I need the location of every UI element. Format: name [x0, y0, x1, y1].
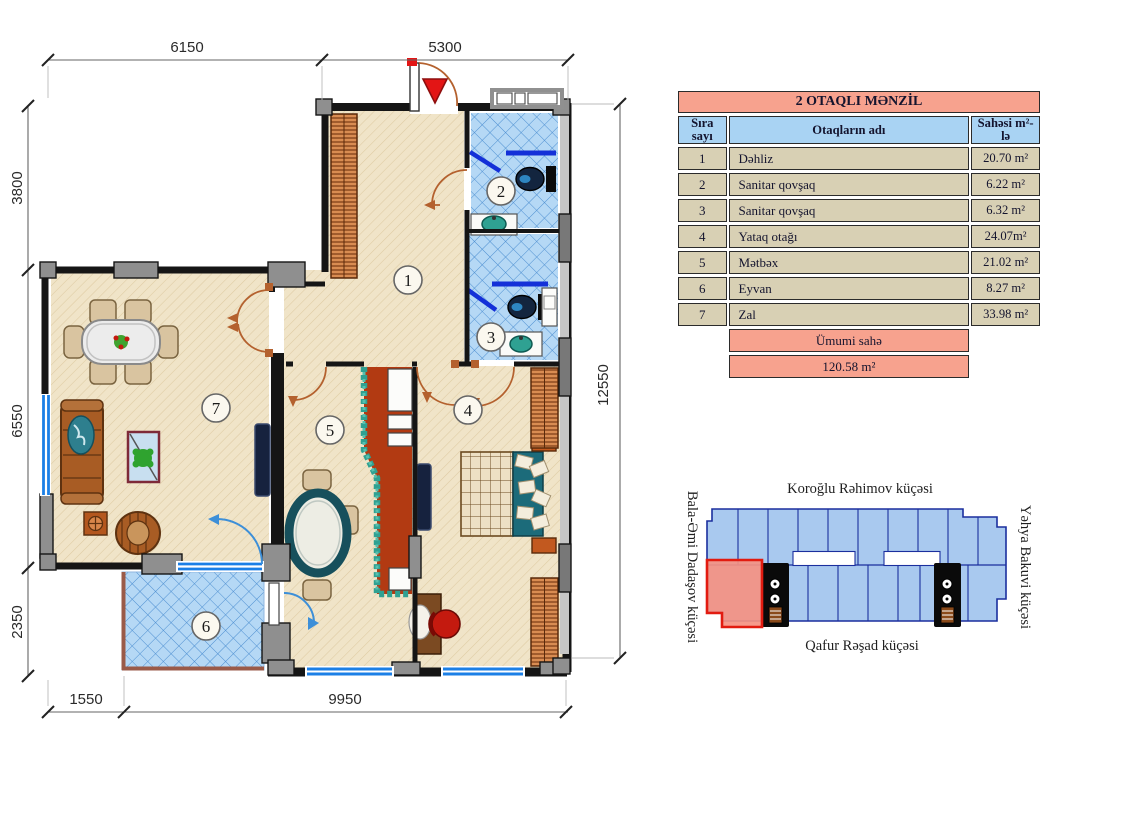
room-circle-6: 6: [192, 612, 220, 640]
table-row: 3Sanitar qovşaq6.32 m²: [678, 199, 1040, 222]
dim-left-middle: 6550: [9, 404, 26, 437]
room-circle-2: 2: [487, 177, 515, 205]
svg-text:1: 1: [404, 271, 413, 290]
tv-panel-bedroom: [417, 464, 431, 530]
room-circle-7: 7: [202, 394, 230, 422]
street-right-label: Yəhya Bakuvi küçəsi: [1017, 505, 1033, 629]
bed: [461, 436, 556, 553]
entrance-door: [407, 58, 458, 114]
architectural-plan-sheet: 1 2 3 4 5 6 7: [0, 0, 1127, 828]
desk-chair: [432, 610, 460, 638]
floor-plan: 1 2 3 4 5 6 7: [0, 0, 660, 770]
apartment-area-table: 2 OTAQLI MƏNZİL Sıra sayı Otaqların adı …: [676, 88, 1042, 381]
dim-bottom-left: 1550: [69, 691, 102, 708]
svg-text:2: 2: [497, 182, 506, 201]
svg-text:4: 4: [464, 401, 473, 420]
tv-panel-living: [255, 424, 270, 496]
dim-top-right: 5300: [428, 39, 461, 56]
entrance-marker-icon: [423, 79, 447, 103]
side-table: [84, 512, 107, 535]
room-circle-4: 4: [454, 396, 482, 424]
total-area-label: Ümumi sahə: [729, 329, 970, 352]
stair-core: [934, 563, 961, 627]
table-row: 7Zal33.98 m²: [678, 303, 1040, 326]
svg-text:3: 3: [487, 328, 496, 347]
total-area-value: 120.58 m²: [729, 355, 970, 378]
highlighted-unit: [707, 560, 762, 627]
table-title: 2 OTAQLI MƏNZİL: [678, 91, 1040, 113]
stair-core: [762, 563, 789, 627]
col-header-no: Sıra sayı: [678, 116, 727, 144]
table-row: 6Eyvan8.27 m²: [678, 277, 1040, 300]
site-building: [707, 509, 1006, 627]
sofa: [61, 400, 103, 504]
room-circle-5: 5: [316, 416, 344, 444]
vent-shaft: [492, 90, 562, 107]
dim-right: 12550: [595, 364, 612, 406]
svg-text:7: 7: [212, 399, 221, 418]
col-header-area: Sahəsi m²-lə: [971, 116, 1040, 144]
dim-top-left: 6150: [170, 39, 203, 56]
coffee-table: [128, 432, 159, 482]
dim-left-bottom: 2350: [9, 605, 26, 638]
table-row: 4Yataq otağı24.07m²: [678, 225, 1040, 248]
table-row: 5Mətbəx21.02 m²: [678, 251, 1040, 274]
toilet-tank: [546, 166, 556, 192]
dim-left-top: 3800: [9, 171, 26, 204]
site-plan: Koroğlu Rəhimov küçəsi Qafur Rəşad küçəs…: [655, 470, 1050, 670]
dim-bottom-right: 9950: [328, 691, 361, 708]
room-circle-3: 3: [477, 323, 505, 351]
svg-text:5: 5: [326, 421, 335, 440]
svg-text:6: 6: [202, 617, 211, 636]
street-left-label: Bala-Əmi Dadaşov küçəsi: [684, 491, 700, 643]
street-bottom-label: Qafur Rəşad küçəsi: [805, 638, 919, 654]
room-circle-1: 1: [394, 266, 422, 294]
col-header-name: Otaqların adı: [729, 116, 970, 144]
table-row: 1Dəhliz20.70 m²: [678, 147, 1040, 170]
table-row: 2Sanitar qovşaq6.22 m²: [678, 173, 1040, 196]
armchair: [116, 512, 160, 554]
street-top-label: Koroğlu Rəhimov küçəsi: [787, 481, 933, 497]
